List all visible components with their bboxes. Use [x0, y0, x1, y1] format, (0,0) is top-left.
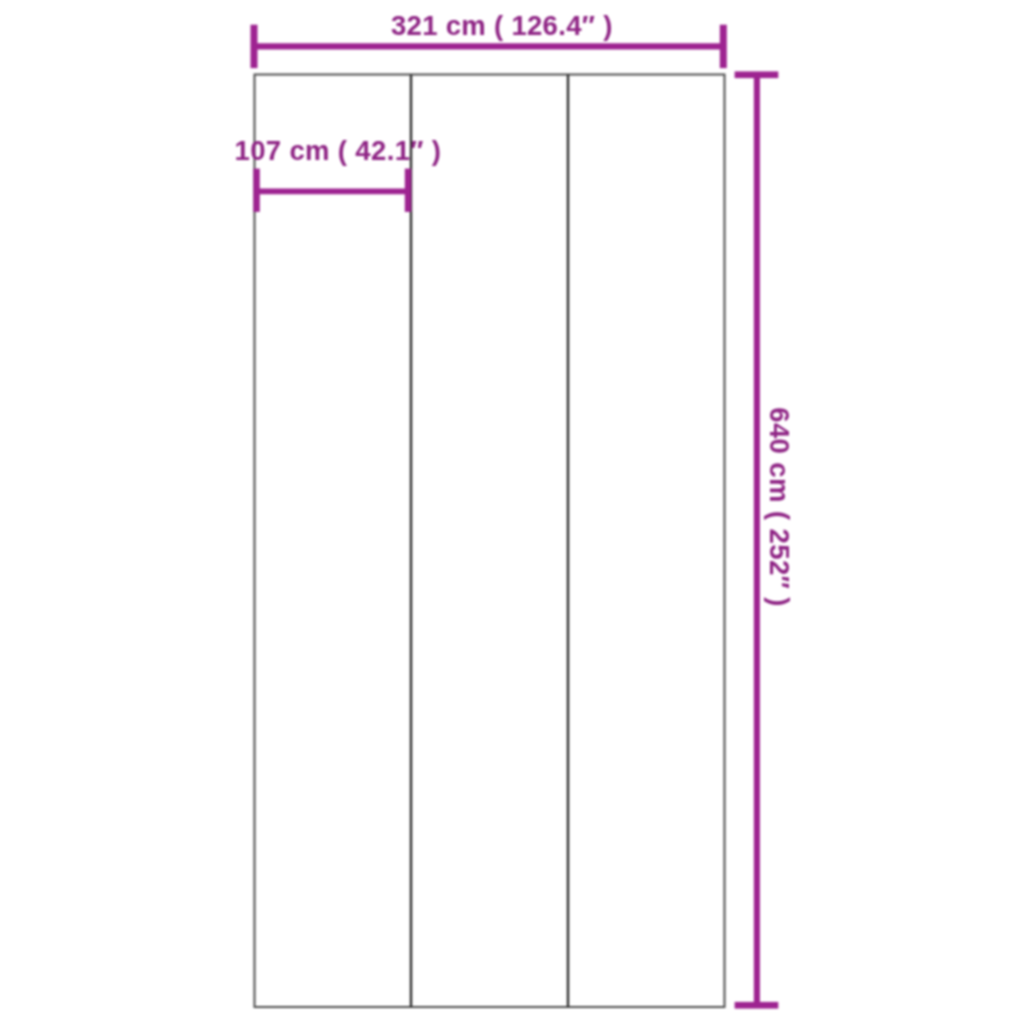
svg-text:321 cm ( 126.4″ ): 321 cm ( 126.4″ ) [391, 10, 613, 41]
svg-text:107 cm ( 42.1″ ): 107 cm ( 42.1″ ) [235, 135, 442, 166]
svg-text:640 cm ( 252″ ): 640 cm ( 252″ ) [764, 407, 795, 607]
